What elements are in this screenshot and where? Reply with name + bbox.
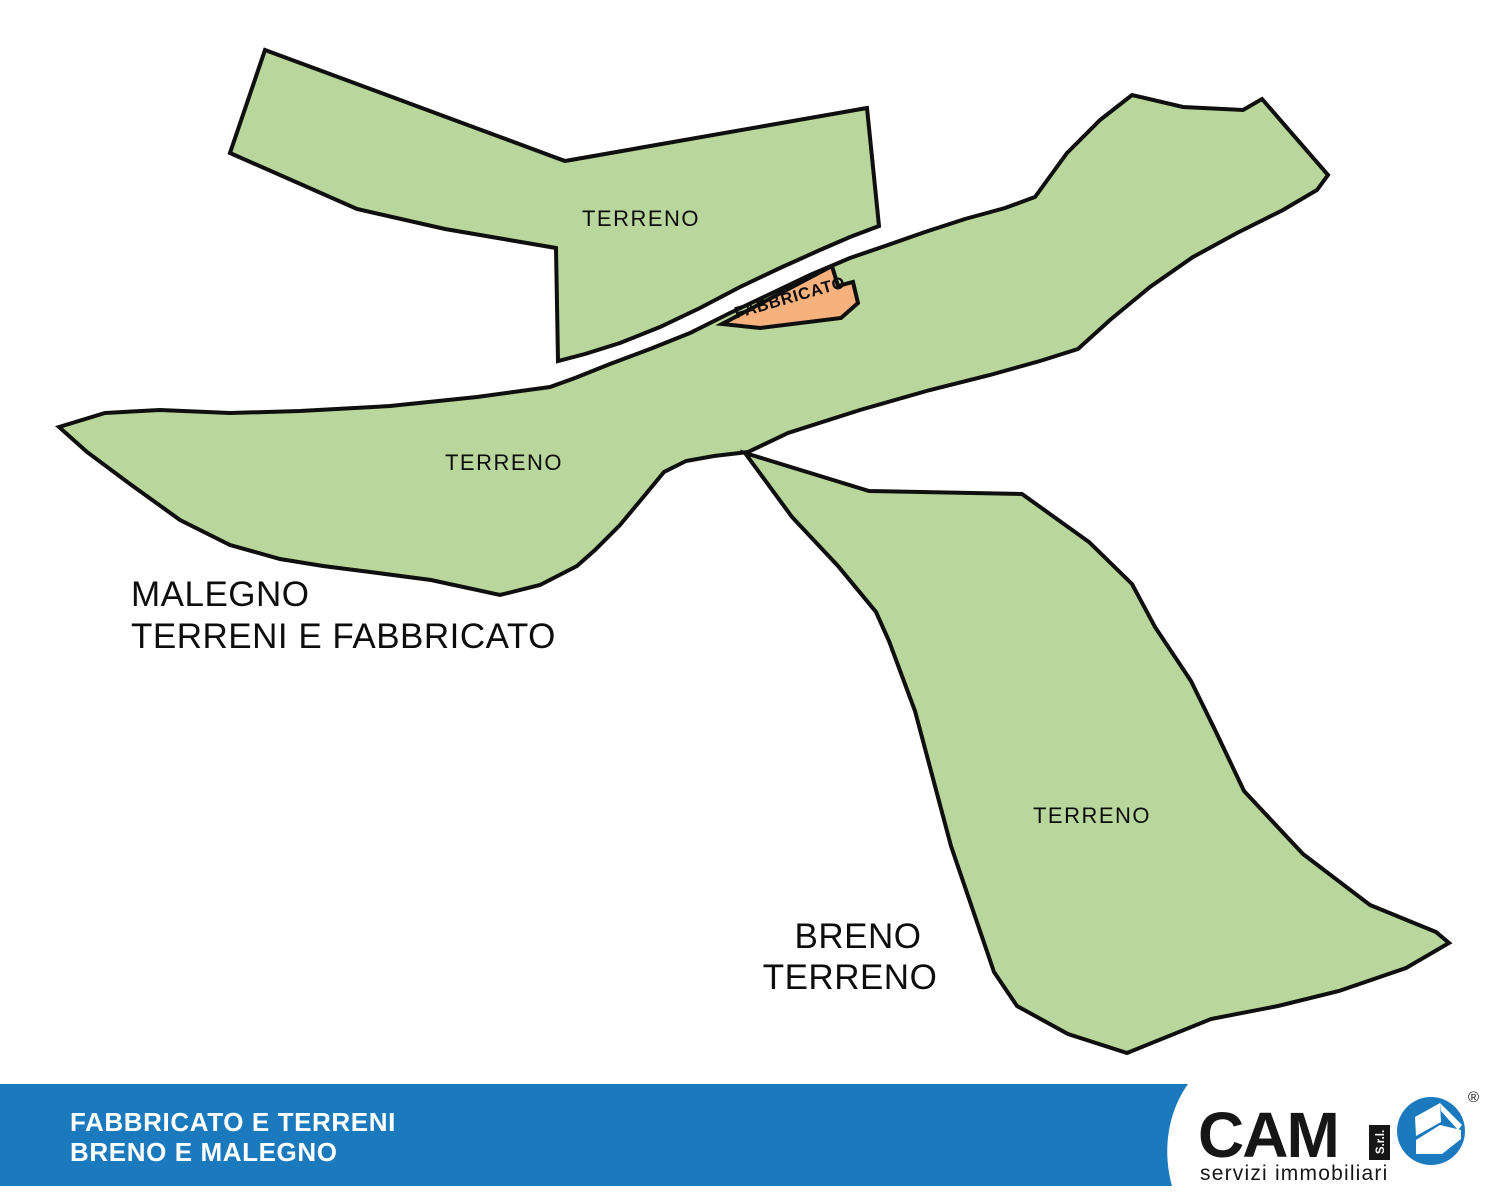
title-malegno-line2: TERRENI E FABBRICATO — [131, 617, 556, 656]
parcel-label-terreno-band: TERRENO — [445, 450, 563, 475]
footer-caption-line2: BRENO E MALEGNO — [70, 1137, 338, 1167]
registered-trademark-symbol: ® — [1468, 1089, 1479, 1106]
house-icon — [1397, 1097, 1465, 1165]
title-breno-line2: TERRENO — [763, 958, 938, 997]
cam-logo-wordmark: CAM — [1198, 1099, 1338, 1171]
parcel-label-terreno-upper: TERRENO — [582, 206, 700, 231]
title-malegno-line1: MALEGNO — [131, 575, 310, 614]
parcel-label-terreno-breno: TERRENO — [1033, 803, 1151, 828]
title-breno-line1: BRENO — [795, 917, 922, 956]
parcel-map-canvas: TERRENO TERRENO TERRENO FABBRICATO MALEG… — [0, 0, 1500, 1199]
parcel-map-page: TERRENO TERRENO TERRENO FABBRICATO MALEG… — [0, 0, 1500, 1199]
cam-logo-srl-text: S.r.l. — [1375, 1130, 1387, 1154]
footer-caption-line1: FABBRICATO E TERRENI — [70, 1107, 396, 1137]
cam-logo-tagline: servizi immobiliari — [1200, 1162, 1388, 1185]
